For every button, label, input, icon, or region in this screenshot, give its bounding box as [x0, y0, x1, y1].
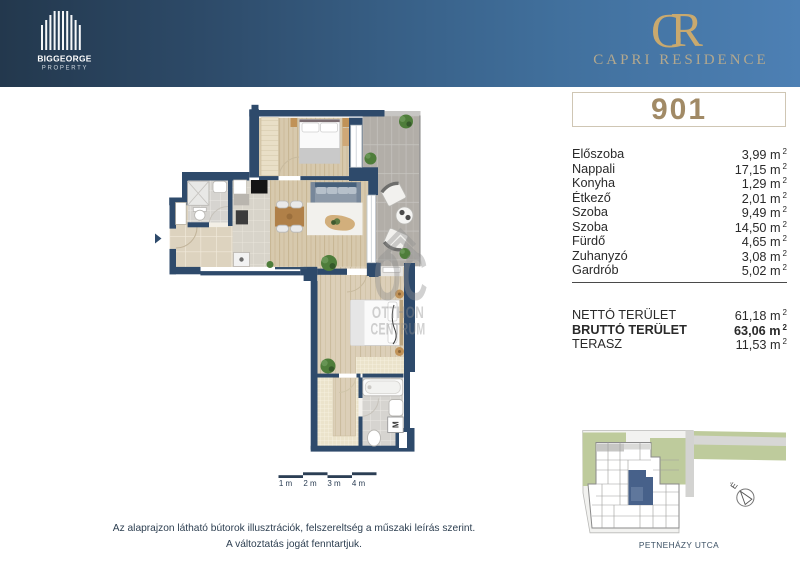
svg-text:4 m: 4 m [352, 479, 366, 488]
svg-text:É: É [728, 480, 740, 491]
svg-text:M: M [391, 421, 400, 428]
svg-text:2 m: 2 m [303, 479, 317, 488]
svg-text:1 m: 1 m [279, 479, 293, 488]
svg-text:CENTRUM: CENTRUM [370, 319, 425, 338]
svg-text:3 m: 3 m [327, 479, 341, 488]
